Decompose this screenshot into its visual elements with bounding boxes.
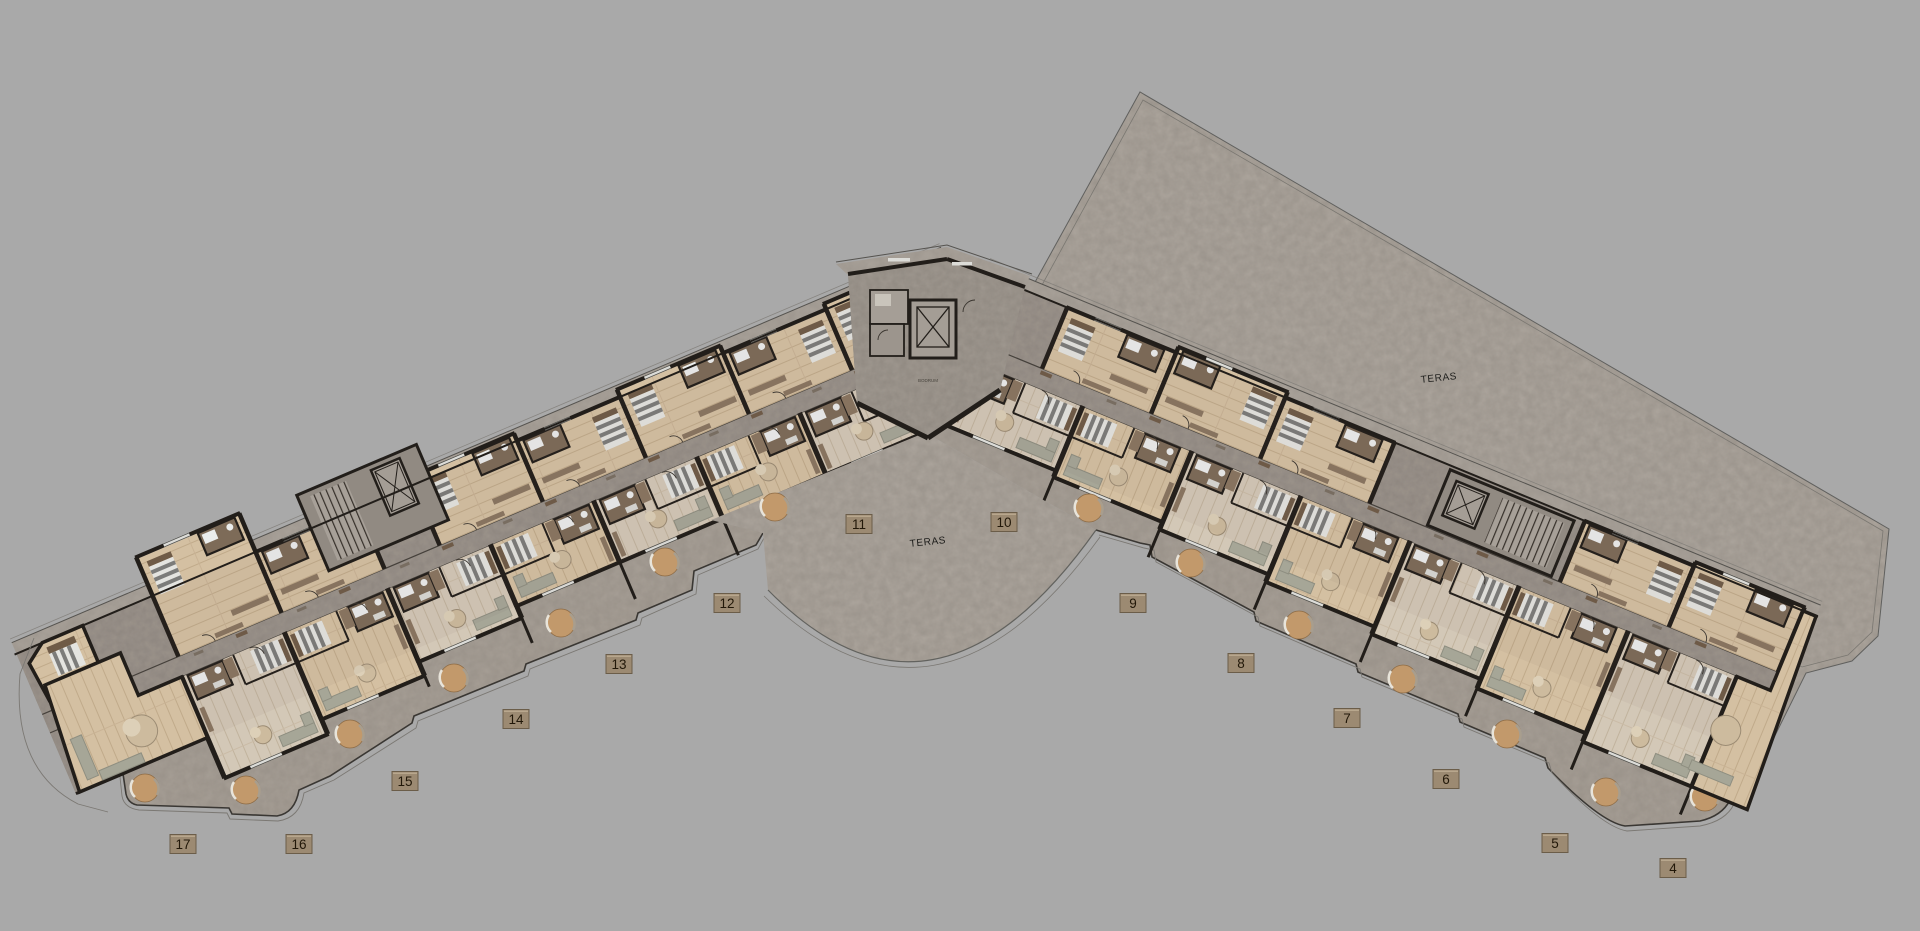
svg-text:11: 11 [852,517,866,532]
svg-text:4: 4 [1669,861,1677,876]
svg-text:14: 14 [508,712,524,727]
svg-text:5: 5 [1551,836,1559,851]
svg-text:13: 13 [611,657,626,672]
svg-text:12: 12 [719,596,734,611]
svg-text:9: 9 [1129,596,1137,611]
svg-text:17: 17 [175,837,190,852]
svg-text:6: 6 [1442,772,1450,787]
svg-text:10: 10 [996,515,1011,530]
svg-text:8: 8 [1237,656,1245,671]
svg-text:7: 7 [1343,711,1351,726]
svg-text:BODRUM: BODRUM [918,378,938,383]
svg-text:16: 16 [291,837,306,852]
svg-text:15: 15 [397,774,412,789]
